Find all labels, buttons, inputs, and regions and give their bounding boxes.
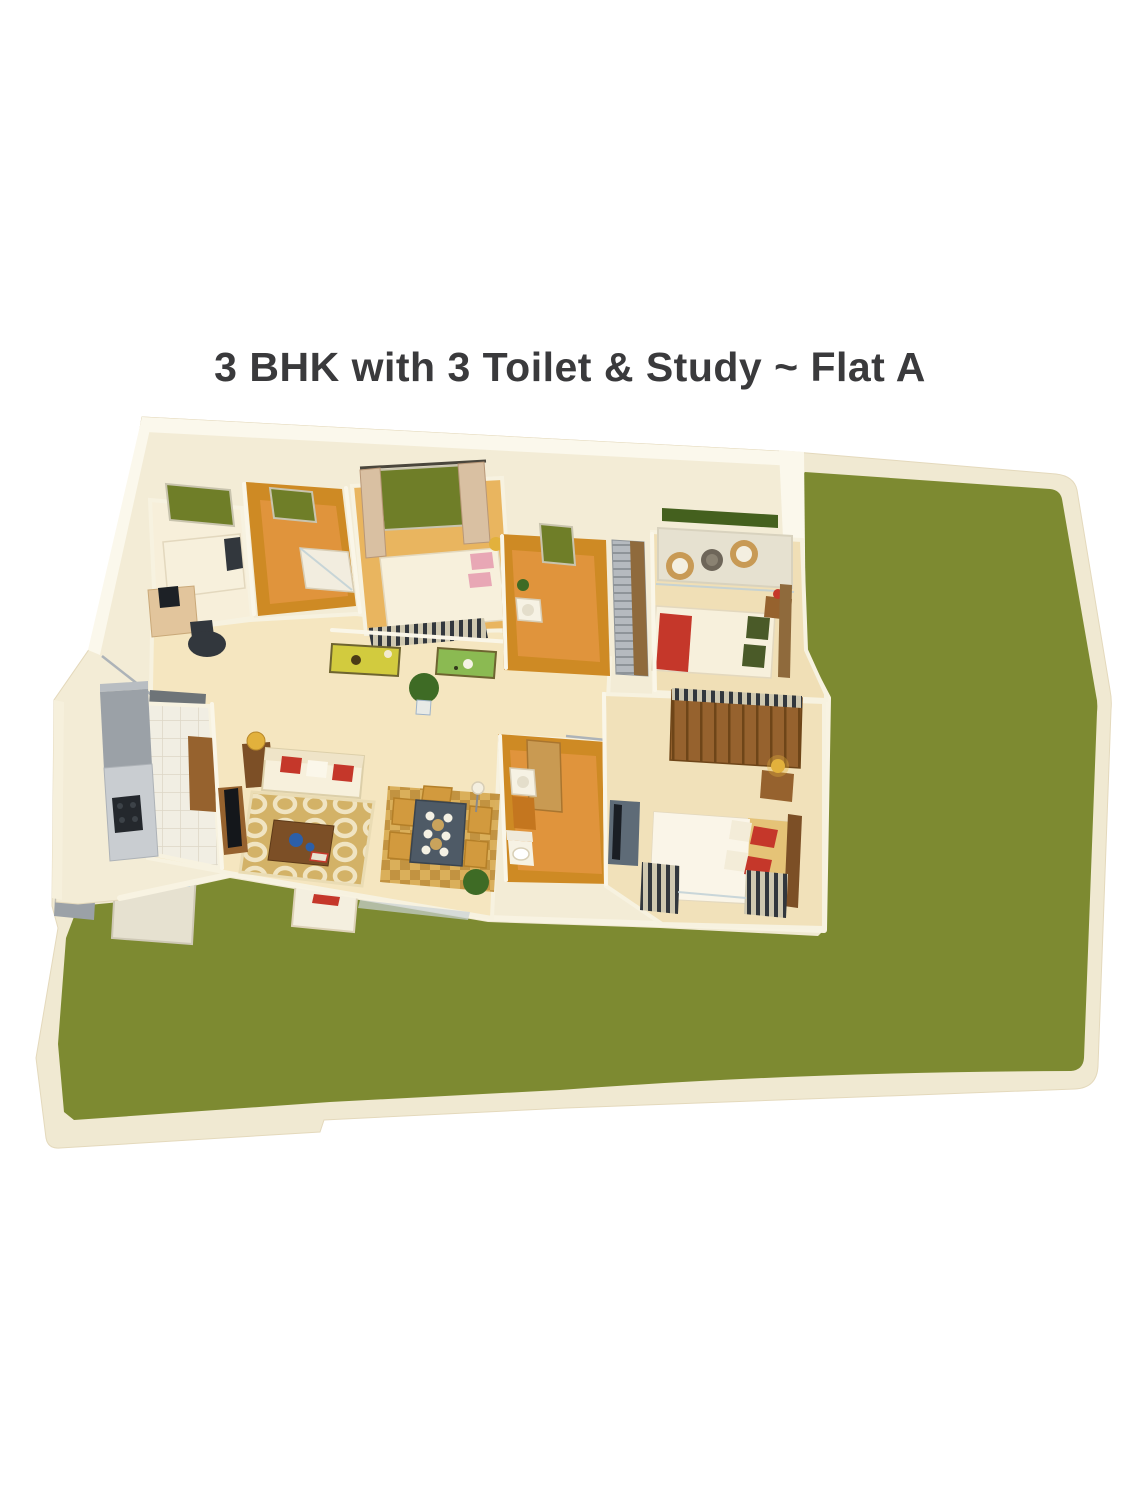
study-monitor [158, 586, 180, 608]
corridor-plant-pot [416, 700, 431, 715]
dining-plate-5 [422, 846, 431, 855]
bedroom-2-cushion-2 [742, 644, 766, 668]
bathroom-2-window [540, 524, 575, 565]
sofa-cushion-white [306, 760, 328, 778]
bathroom-3-basin-bowl [517, 776, 529, 788]
dining-plate-2 [444, 814, 453, 823]
dining-plate-4 [442, 832, 451, 841]
left-lower-wall [52, 700, 64, 900]
kitchen-cabinet [188, 736, 216, 812]
bedroom-3-railing-left [640, 862, 680, 914]
coffee-table-magazine [310, 852, 328, 862]
bedroom-3 [604, 688, 824, 928]
corridor-plant [409, 673, 439, 703]
balcony-table-top [706, 554, 718, 566]
study-window [166, 484, 234, 526]
bathroom-1-window [270, 488, 316, 522]
kitchen [100, 681, 222, 868]
dining-chair-3 [468, 806, 492, 834]
rattan-chair-right-cushion [736, 546, 752, 562]
dining-plate-3 [424, 830, 433, 839]
bathroom-1 [246, 482, 356, 616]
dining-plate-1 [426, 812, 435, 821]
kitchen-stove [112, 795, 143, 833]
sofa-cushion-red-2 [332, 764, 354, 782]
bathroom-3-cabinet [512, 796, 536, 830]
sofa-lamp [247, 732, 265, 750]
stove-burner-4 [132, 816, 138, 822]
bedroom-3-pillow-white-2 [724, 850, 748, 872]
bedroom-3-railing-right [744, 870, 788, 918]
painting-1 [330, 644, 400, 676]
dining-chair-2 [388, 832, 412, 860]
floor-plan-scene [0, 0, 1140, 1500]
bathroom-2-basin-bowl [522, 604, 534, 616]
wall-bedroom3-left [604, 694, 606, 884]
stove-burner-2 [130, 802, 136, 808]
bedroom-2-right-wardrobe [778, 584, 792, 678]
kitchen-tall-unit [100, 689, 152, 770]
bathroom-3 [498, 734, 612, 884]
study-bed-blanket [224, 537, 243, 571]
dining-chair-1 [392, 798, 416, 826]
painting-1-sun [384, 650, 392, 658]
bathroom-2-plant [517, 579, 529, 591]
master-bedroom [352, 461, 512, 648]
dining-table [410, 800, 466, 866]
bedroom-2-cushion-1 [746, 616, 770, 640]
coffee-table-bowl-1 [289, 833, 303, 847]
wardrobe-passage [612, 540, 648, 676]
master-bed-pillow-1 [470, 552, 494, 570]
floor-lamp-shade [472, 782, 484, 794]
painting-2-bird [463, 659, 473, 669]
dining-plate-6 [440, 848, 449, 857]
coffee-table-bowl-2 [306, 843, 315, 852]
painting-1-motif [351, 655, 361, 665]
rattan-chair-left-cushion [672, 558, 688, 574]
bedroom-3-pillow-white-1 [729, 820, 752, 842]
bathroom-3-toilet-seat [513, 848, 529, 860]
apartment [52, 417, 828, 930]
dining-area [380, 782, 500, 895]
bathroom-2 [500, 524, 610, 676]
master-bedroom-window [378, 465, 472, 530]
page: 3 BHK with 3 Toilet & Study ~ Flat A [0, 0, 1140, 1500]
bedroom-3-lamp [771, 759, 785, 773]
dining-bowl-1 [432, 819, 444, 831]
bedroom-2-red-runner [656, 613, 692, 672]
dining-bowl-2 [430, 838, 442, 850]
master-bed-pillow-2 [468, 572, 492, 588]
dining-plant [463, 869, 489, 895]
stove-burner-3 [119, 817, 125, 823]
dining-chair-5 [422, 786, 452, 802]
curtain-right [458, 462, 490, 544]
study-chair [188, 631, 226, 657]
painting-2-speck [454, 666, 458, 670]
dining-chair-4 [464, 840, 488, 868]
stove-burner-1 [117, 803, 123, 809]
sofa-cushion-red-1 [280, 756, 302, 774]
